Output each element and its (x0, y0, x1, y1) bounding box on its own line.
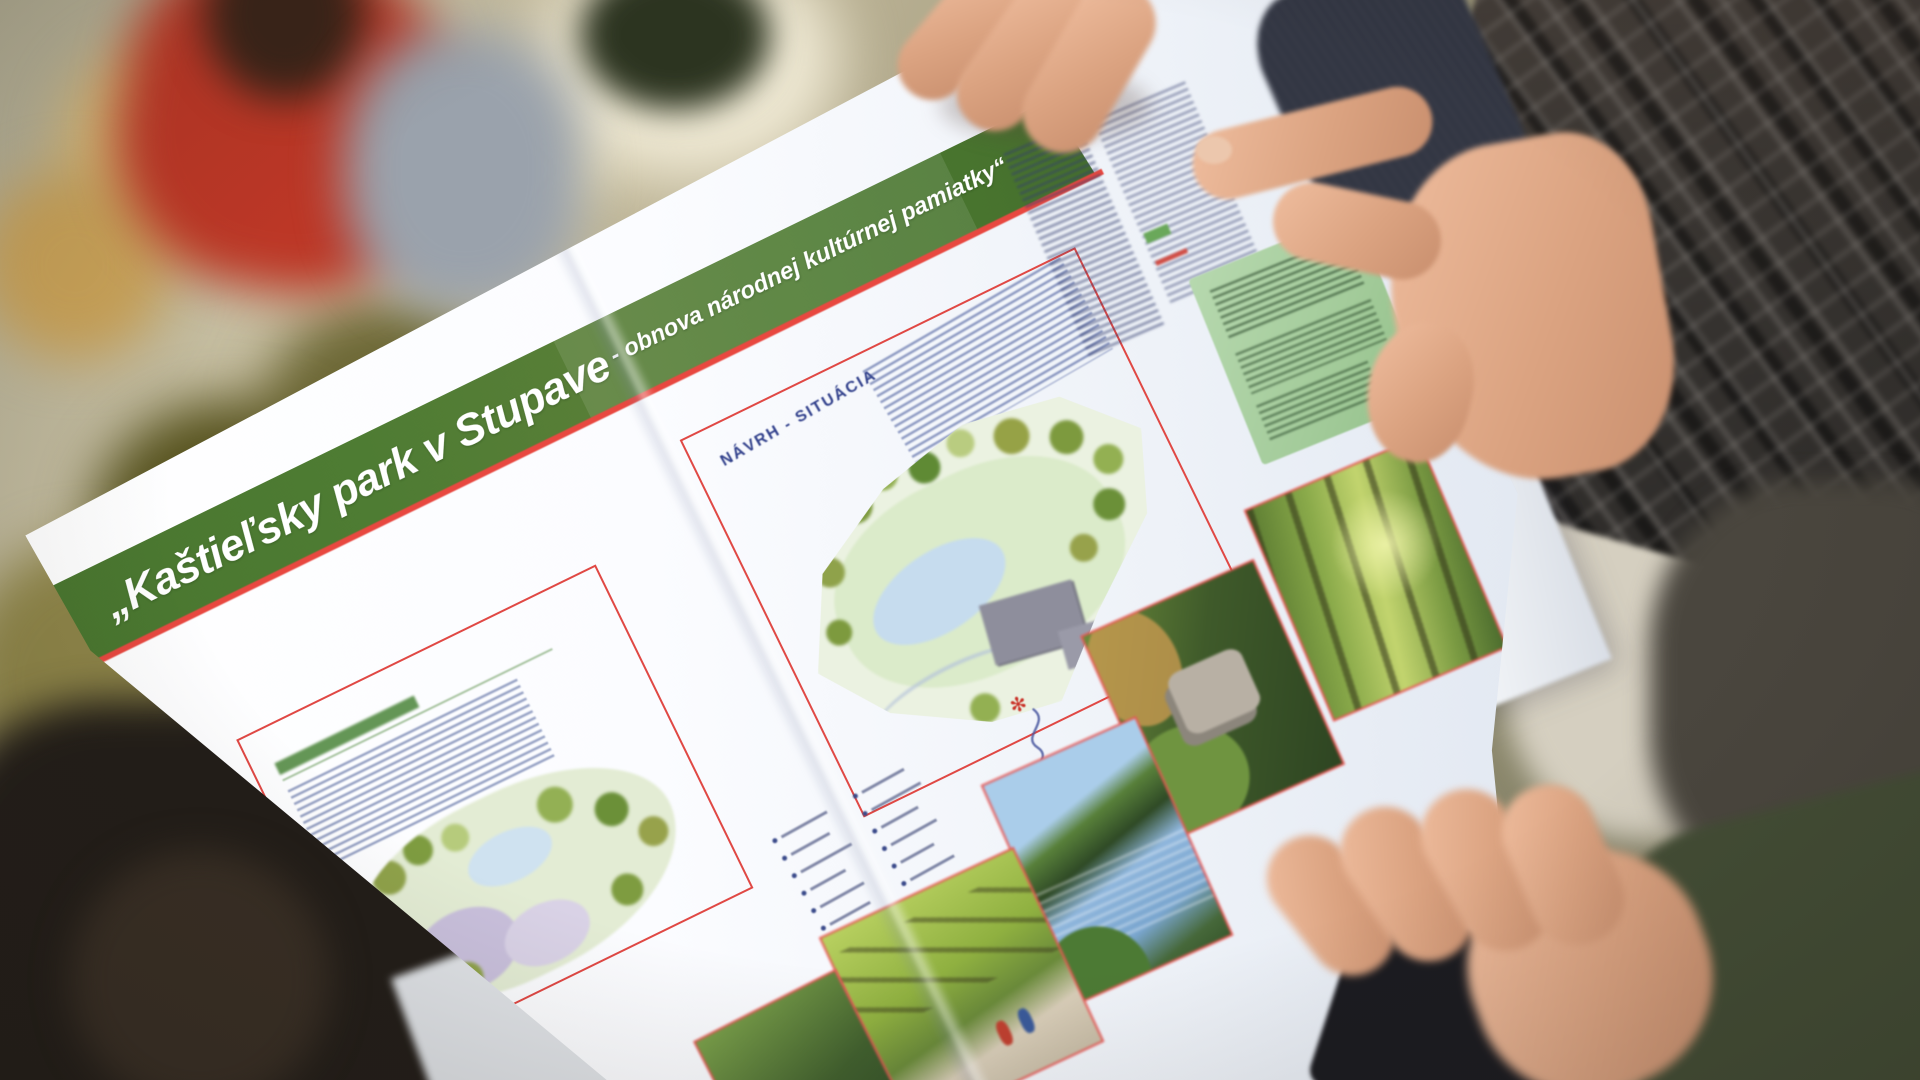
legend-dot (810, 907, 817, 914)
plan-tree (398, 830, 438, 870)
plan-tree (589, 786, 634, 831)
legend-dot (781, 855, 788, 862)
walking-person (994, 1019, 1016, 1048)
legend-dot (862, 810, 869, 817)
legend-label-blurred (819, 881, 864, 908)
plan-tree (437, 819, 474, 856)
legend-dot (852, 793, 859, 800)
legend-label-blurred (790, 832, 830, 856)
plan-pond (459, 814, 562, 898)
plan-tree (987, 412, 1035, 460)
legend-dot (900, 880, 907, 887)
legend-item (881, 810, 952, 852)
legend-dot (820, 925, 827, 932)
legend-label-blurred (880, 806, 918, 829)
legend-dot (801, 890, 808, 897)
legend-item (871, 792, 942, 834)
fingernail (1196, 136, 1232, 164)
legend-dot (891, 863, 898, 870)
legend-label-blurred (900, 842, 935, 863)
walking-person (1015, 1006, 1037, 1035)
photo-scene: „Kaštieľsky park v Stupave - obnova náro… (0, 0, 1920, 1080)
legend-dot (871, 828, 878, 835)
plan-tree (863, 456, 903, 496)
plan-tree (1044, 414, 1089, 459)
legend-label-blurred (810, 869, 847, 891)
plan-tree (606, 868, 649, 911)
plan-tree (1088, 439, 1128, 479)
legend-dot (772, 837, 779, 844)
plan-tree (633, 811, 673, 851)
panel-heading: NÁVRH - SITUÁCIA (718, 366, 881, 470)
legend-item (891, 827, 962, 869)
plan-flowerbed (494, 886, 601, 979)
plan-tree (531, 781, 579, 829)
legend-dot (791, 872, 798, 879)
legend-dot (881, 845, 888, 852)
